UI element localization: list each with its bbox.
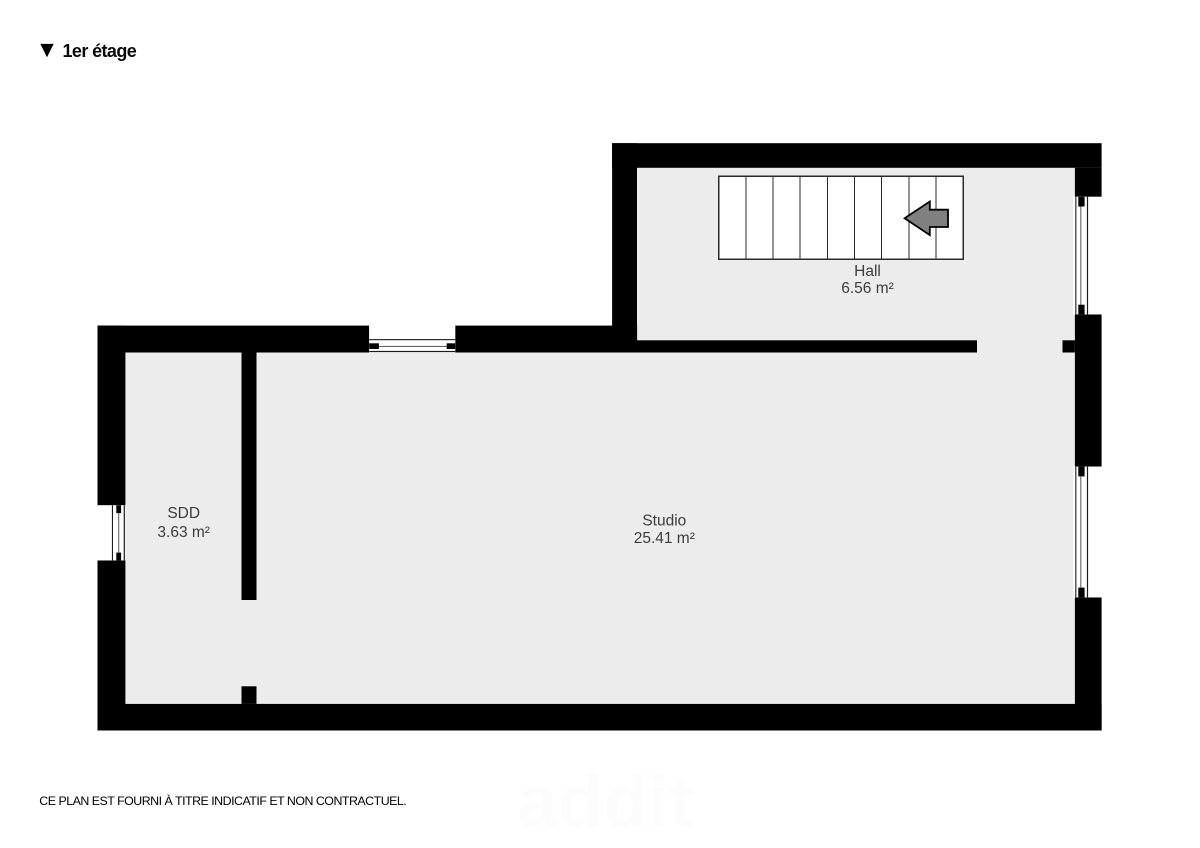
svg-text:CE PLAN EST FOURNI À TITRE IND: CE PLAN EST FOURNI À TITRE INDICATIF ET …	[39, 793, 406, 808]
svg-text:addit: addit	[518, 762, 695, 842]
svg-text:Hall: Hall	[854, 263, 881, 280]
svg-text:1er étage: 1er étage	[63, 41, 137, 61]
svg-text:SDD: SDD	[167, 505, 200, 522]
svg-text:Studio: Studio	[642, 513, 686, 530]
svg-text:25.41 m²: 25.41 m²	[634, 530, 695, 547]
svg-text:6.56 m²: 6.56 m²	[841, 280, 894, 297]
svg-text:3.63 m²: 3.63 m²	[157, 524, 210, 541]
